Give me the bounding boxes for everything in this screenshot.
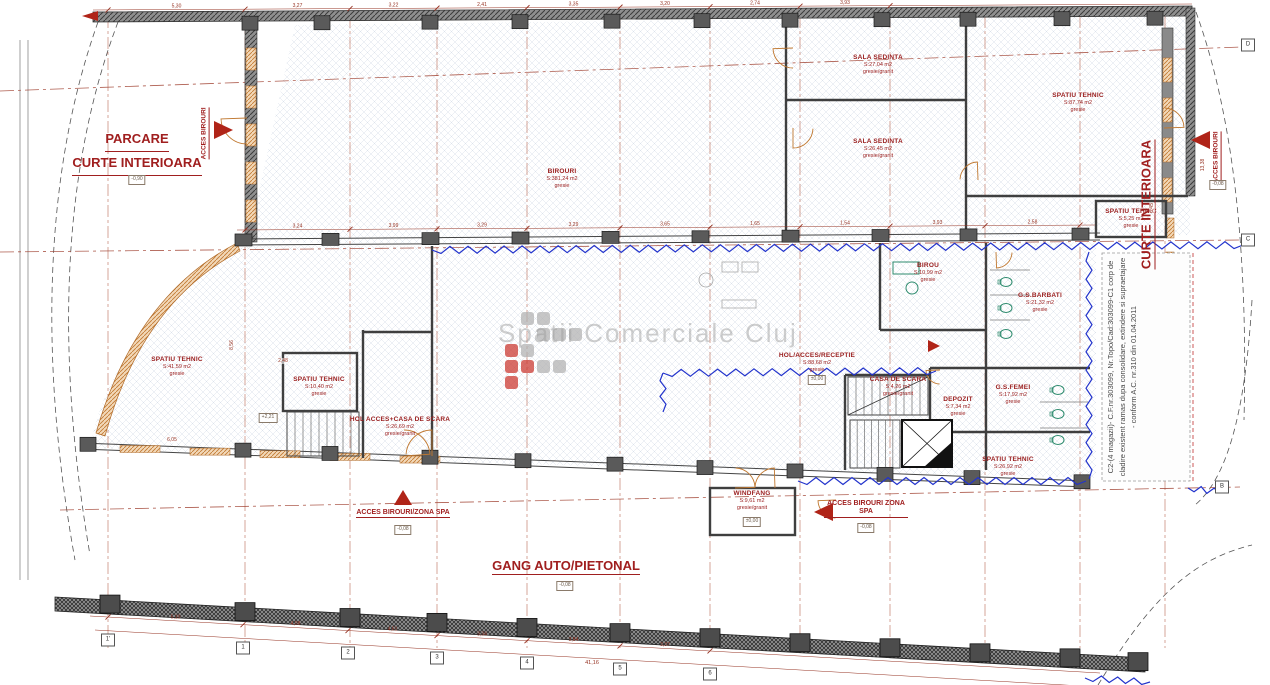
floor-plan-canvas: 5,303,273,222,413,353,202,743,933,243,99… [0,0,1270,685]
dim-value: 4,08 [291,621,301,627]
dim-value: 3,84 [569,637,579,643]
dim-value: 2,74 [750,0,760,6]
dim-value: 3,34 [477,632,487,638]
dim-value: 3,20 [660,1,670,7]
arrow-top-left-icon [82,11,98,21]
dim-value: 5,30 [172,4,182,10]
dim-value: 2,41 [477,2,487,8]
dim-value: 5,10 [171,614,181,620]
dim-value: 3,93 [840,0,850,6]
dim-value: 3,22 [389,2,399,8]
side-note-box [1102,253,1193,481]
dim-value: 4,51 [388,627,398,633]
dim-value: 3,27 [293,3,303,9]
parcare-edge-lines [20,40,28,580]
dim-value: 3,29 [477,223,487,229]
plan-svg: 5,303,273,222,413,353,202,743,933,243,99… [0,0,1270,685]
arrow-acces-spa-mid-icon [814,503,833,521]
dim-value: 3,37 [660,642,670,648]
dim-value: 3,93 [933,220,943,226]
arrow-acces-left-icon [214,121,233,139]
dim-value: 2,58 [1028,219,1038,225]
dim-total: 41,16 [585,660,599,666]
dim-value: 1,65 [750,221,760,227]
dim-value: 3,99 [389,223,399,229]
dim-value: 3,29 [569,222,579,228]
elevator-shaft [902,420,952,467]
dim-value: 1,54 [840,220,850,226]
dim-value: 3,24 [293,224,303,230]
arrow-acces-spa-left-icon [394,490,412,505]
dim-value: 3,65 [660,222,670,228]
dim-value: 3,35 [569,1,579,7]
